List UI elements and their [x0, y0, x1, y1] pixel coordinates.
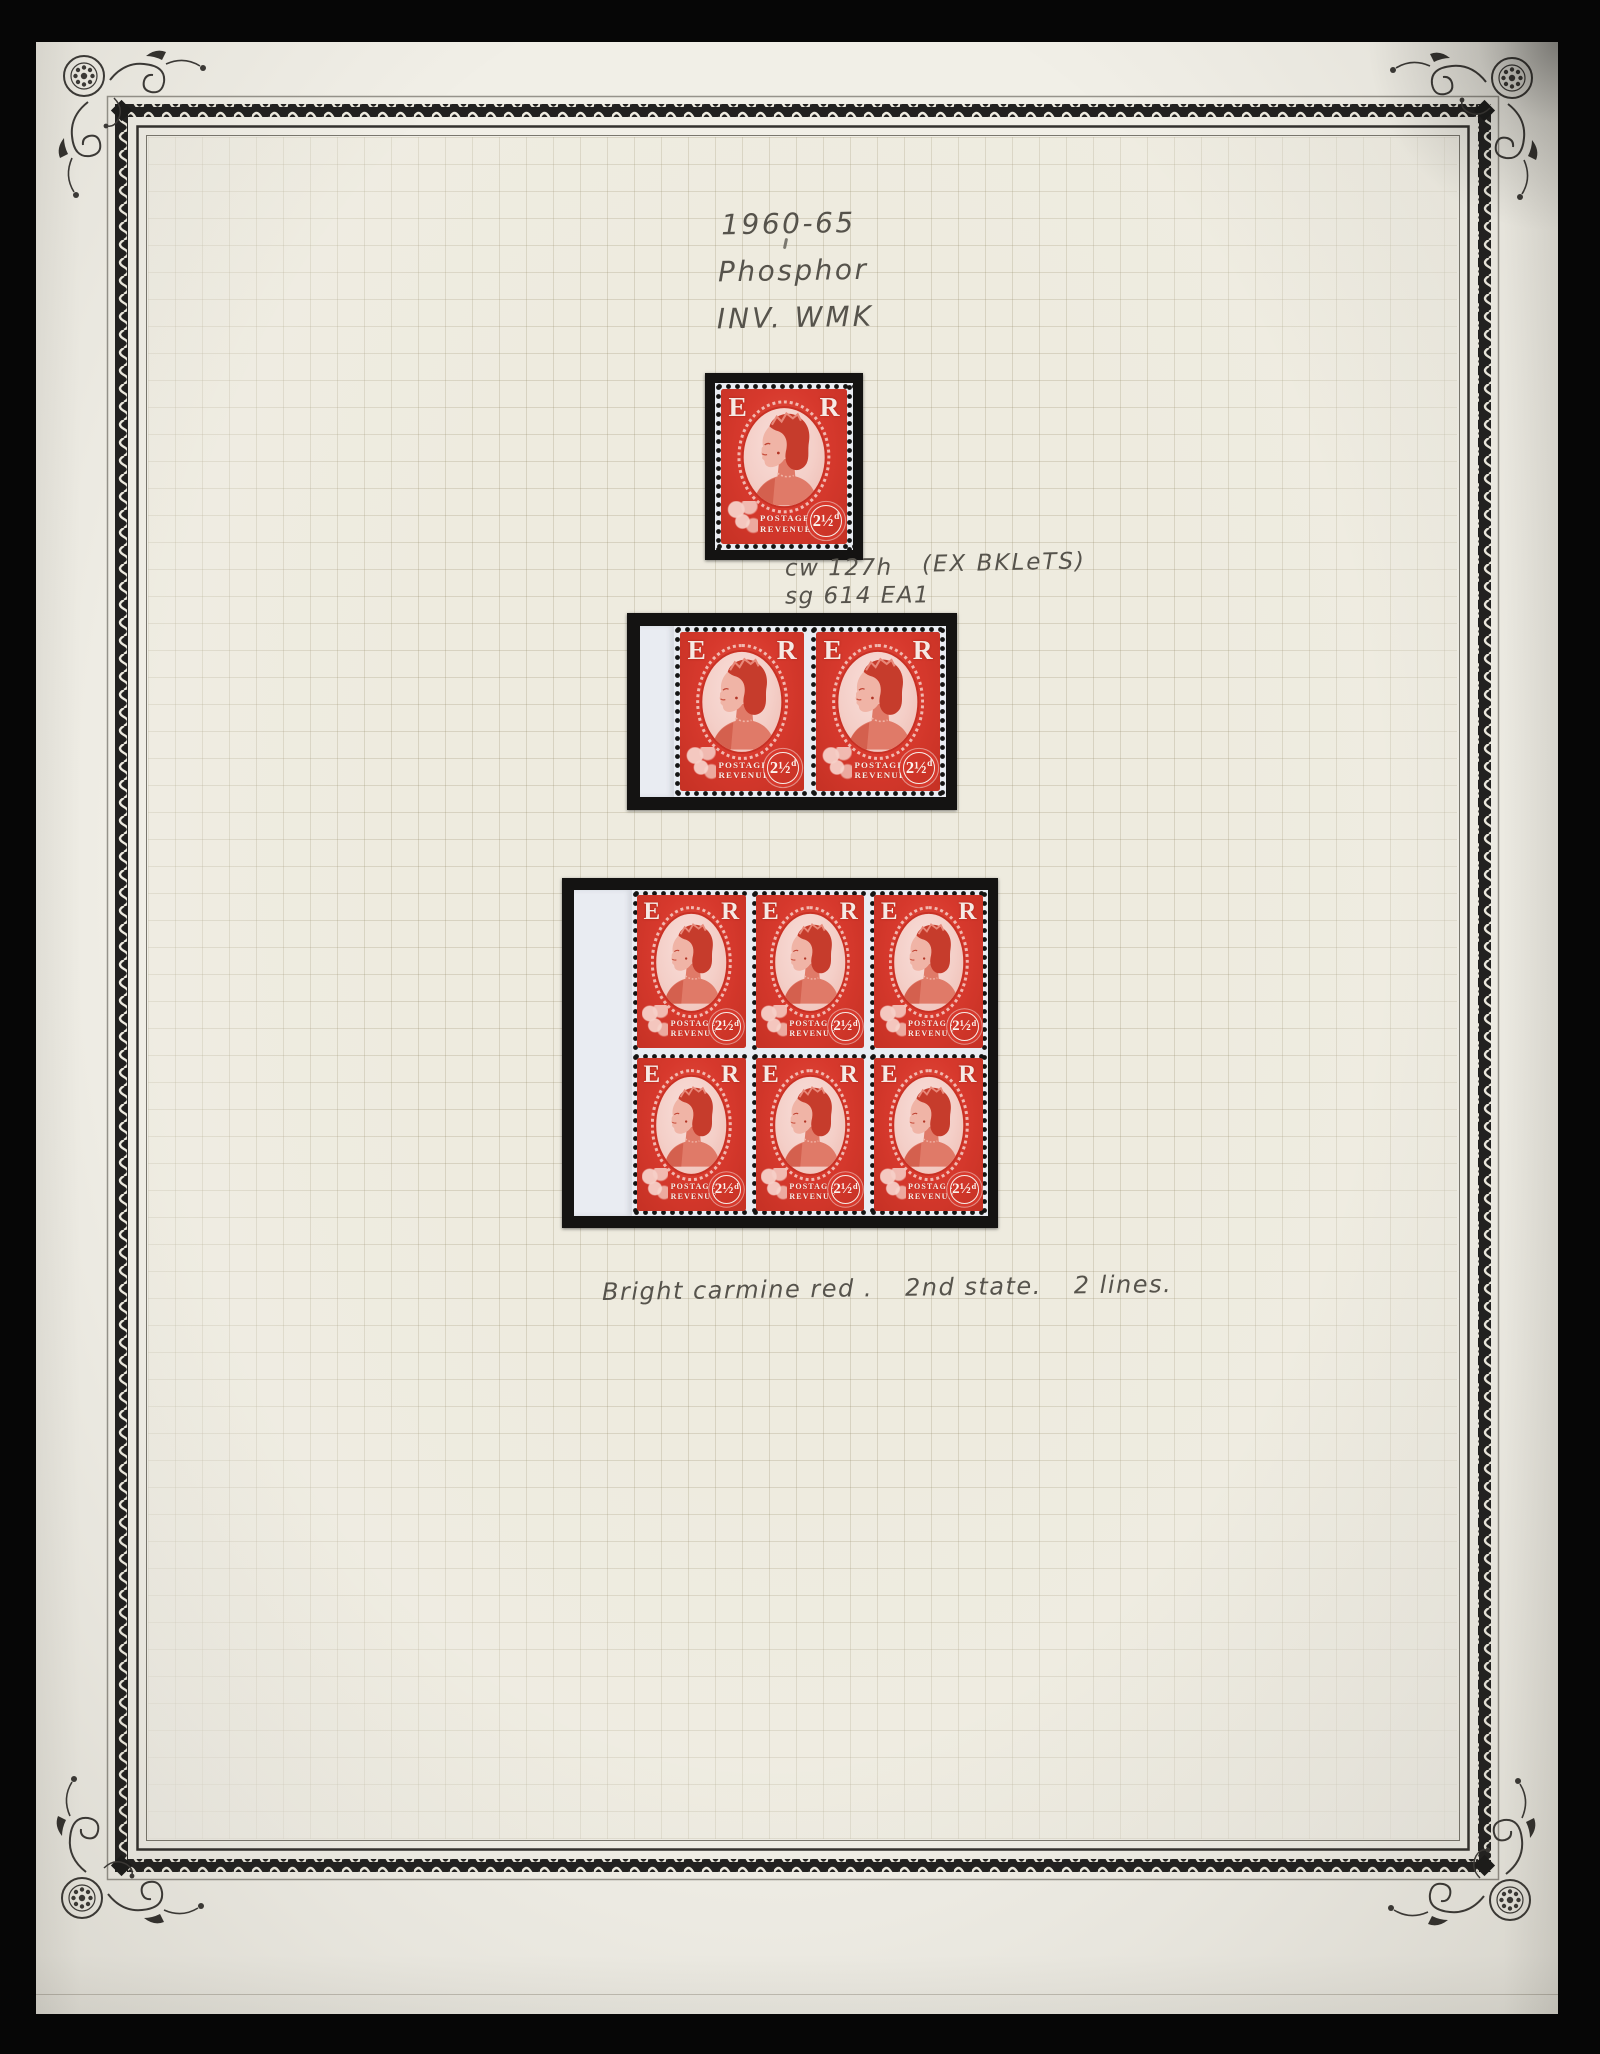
- queen-portrait-icon: [894, 1077, 964, 1173]
- portrait-oval: [775, 914, 845, 1010]
- postage-revenue-label: POSTAGEREVENUE: [908, 1019, 955, 1039]
- stamp-design: ERPOSTAGEREVENUE2½d: [637, 1058, 746, 1211]
- postage-revenue-label: POSTAGEREVENUE: [908, 1182, 955, 1202]
- portrait-oval: [838, 652, 917, 752]
- stamp: ERPOSTAGEREVENUE2½d: [715, 383, 853, 550]
- stamp-design: ERPOSTAGEREVENUE2½d: [680, 632, 804, 791]
- heading-line-year: 1960-65: [721, 199, 873, 249]
- portrait-oval: [744, 408, 825, 506]
- stamp-design: ERPOSTAGEREVENUE2½d: [816, 632, 940, 791]
- heading-line-watermark: INV. WMK: [716, 293, 874, 343]
- postage-revenue-label: POSTAGEREVENUE: [789, 1182, 836, 1202]
- floral-emblems-icon: [642, 1168, 668, 1202]
- value-roundel: 2½d: [810, 505, 842, 537]
- portrait-oval: [657, 914, 727, 1010]
- footnote-lines: 2 lines.: [1074, 1270, 1173, 1299]
- stamp-design: ERPOSTAGEREVENUE2½d: [637, 895, 746, 1048]
- portrait-oval: [657, 1077, 727, 1173]
- floral-emblems-icon: [761, 1005, 787, 1039]
- floral-emblems-icon: [880, 1168, 906, 1202]
- value-roundel: 2½d: [950, 1012, 979, 1041]
- value-roundel: 2½d: [903, 752, 935, 784]
- queen-portrait-icon: [775, 1077, 845, 1173]
- portrait-oval: [894, 1077, 964, 1173]
- value-roundel: 2½d: [950, 1175, 979, 1204]
- value-roundel: 2½d: [712, 1175, 741, 1204]
- stamp-design: ERPOSTAGEREVENUE2½d: [756, 895, 865, 1048]
- stamp: ERPOSTAGEREVENUE2½d: [869, 890, 988, 1053]
- floral-emblems-icon: [822, 747, 852, 782]
- footnote-shade: Bright carmine red .: [602, 1274, 873, 1306]
- floral-emblems-icon: [686, 747, 716, 782]
- selvedge-margin: [640, 626, 674, 797]
- handwritten-heading: 1960-65 Phosphor INV. WMK: [721, 199, 875, 343]
- portrait-oval: [894, 914, 964, 1010]
- footnote-state: 2nd state.: [905, 1272, 1042, 1302]
- stamp: ERPOSTAGEREVENUE2½d: [751, 1053, 870, 1216]
- postage-revenue-label: POSTAGEREVENUE: [671, 1019, 718, 1039]
- portrait-oval: [702, 652, 781, 752]
- selvedge-margin: [574, 890, 632, 1216]
- page-crease-line: [36, 1994, 1558, 1995]
- postage-revenue-label: POSTAGEREVENUE: [718, 760, 770, 782]
- stamp-grid: ERPOSTAGEREVENUE2½dERPOSTAGEREVENUE2½d: [674, 626, 946, 797]
- catalog-number-cw: cw 127h: [785, 553, 930, 582]
- stamp-sheet: ERPOSTAGEREVENUE2½dERPOSTAGEREVENUE2½dER…: [574, 890, 988, 1216]
- portrait-oval: [775, 1077, 845, 1173]
- stamp-mount-pair: ERPOSTAGEREVENUE2½dERPOSTAGEREVENUE2½d: [627, 613, 957, 810]
- postage-revenue-label: POSTAGEREVENUE: [854, 760, 906, 782]
- stamp: ERPOSTAGEREVENUE2½d: [751, 890, 870, 1053]
- value-roundel: 2½d: [831, 1012, 860, 1041]
- stamp-design: ERPOSTAGEREVENUE2½d: [756, 1058, 865, 1211]
- floral-emblems-icon: [642, 1005, 668, 1039]
- stamp-mount-block: ERPOSTAGEREVENUE2½dERPOSTAGEREVENUE2½dER…: [562, 878, 998, 1228]
- queen-portrait-icon: [838, 652, 917, 752]
- heading-line-phosphor: Phosphor: [718, 246, 874, 296]
- stamp-design: ERPOSTAGEREVENUE2½d: [874, 1058, 983, 1211]
- postage-revenue-label: POSTAGEREVENUE: [760, 513, 812, 535]
- booklet-annotation: (EX BKLeTS): [922, 548, 1087, 577]
- stamp: ERPOSTAGEREVENUE2½d: [810, 626, 946, 797]
- catalog-number-sg: sg 614 EA1: [785, 581, 930, 610]
- stamp-grid: ERPOSTAGEREVENUE2½dERPOSTAGEREVENUE2½dER…: [632, 890, 988, 1216]
- stamp-sheet: ERPOSTAGEREVENUE2½d: [715, 383, 853, 550]
- queen-portrait-icon: [657, 1077, 727, 1173]
- stamp: ERPOSTAGEREVENUE2½d: [632, 1053, 751, 1216]
- postage-revenue-label: POSTAGEREVENUE: [671, 1182, 718, 1202]
- stamp-grid: ERPOSTAGEREVENUE2½d: [715, 383, 853, 550]
- floral-emblems-icon: [761, 1168, 787, 1202]
- queen-portrait-icon: [744, 408, 825, 506]
- stamp-design: ERPOSTAGEREVENUE2½d: [721, 389, 847, 544]
- stamp-sheet: ERPOSTAGEREVENUE2½dERPOSTAGEREVENUE2½d: [640, 626, 946, 797]
- catalog-annotation: cw 127h sg 614 EA1: [785, 553, 930, 610]
- stamp: ERPOSTAGEREVENUE2½d: [869, 1053, 988, 1216]
- floral-emblems-icon: [880, 1005, 906, 1039]
- queen-portrait-icon: [657, 914, 727, 1010]
- stamp-design: ERPOSTAGEREVENUE2½d: [874, 895, 983, 1048]
- queen-portrait-icon: [894, 914, 964, 1010]
- value-roundel: 2½d: [831, 1175, 860, 1204]
- album-page: 1960-65 Phosphor INV. WMK ERPOSTAGEREVEN…: [36, 42, 1558, 2014]
- stamp: ERPOSTAGEREVENUE2½d: [632, 890, 751, 1053]
- floral-emblems-icon: [727, 501, 757, 535]
- stamp: ERPOSTAGEREVENUE2½d: [674, 626, 810, 797]
- stamp-mount-single: ERPOSTAGEREVENUE2½d: [705, 373, 863, 560]
- queen-portrait-icon: [702, 652, 781, 752]
- value-roundel: 2½d: [712, 1012, 741, 1041]
- queen-portrait-icon: [775, 914, 845, 1010]
- value-roundel: 2½d: [767, 752, 799, 784]
- postage-revenue-label: POSTAGEREVENUE: [789, 1019, 836, 1039]
